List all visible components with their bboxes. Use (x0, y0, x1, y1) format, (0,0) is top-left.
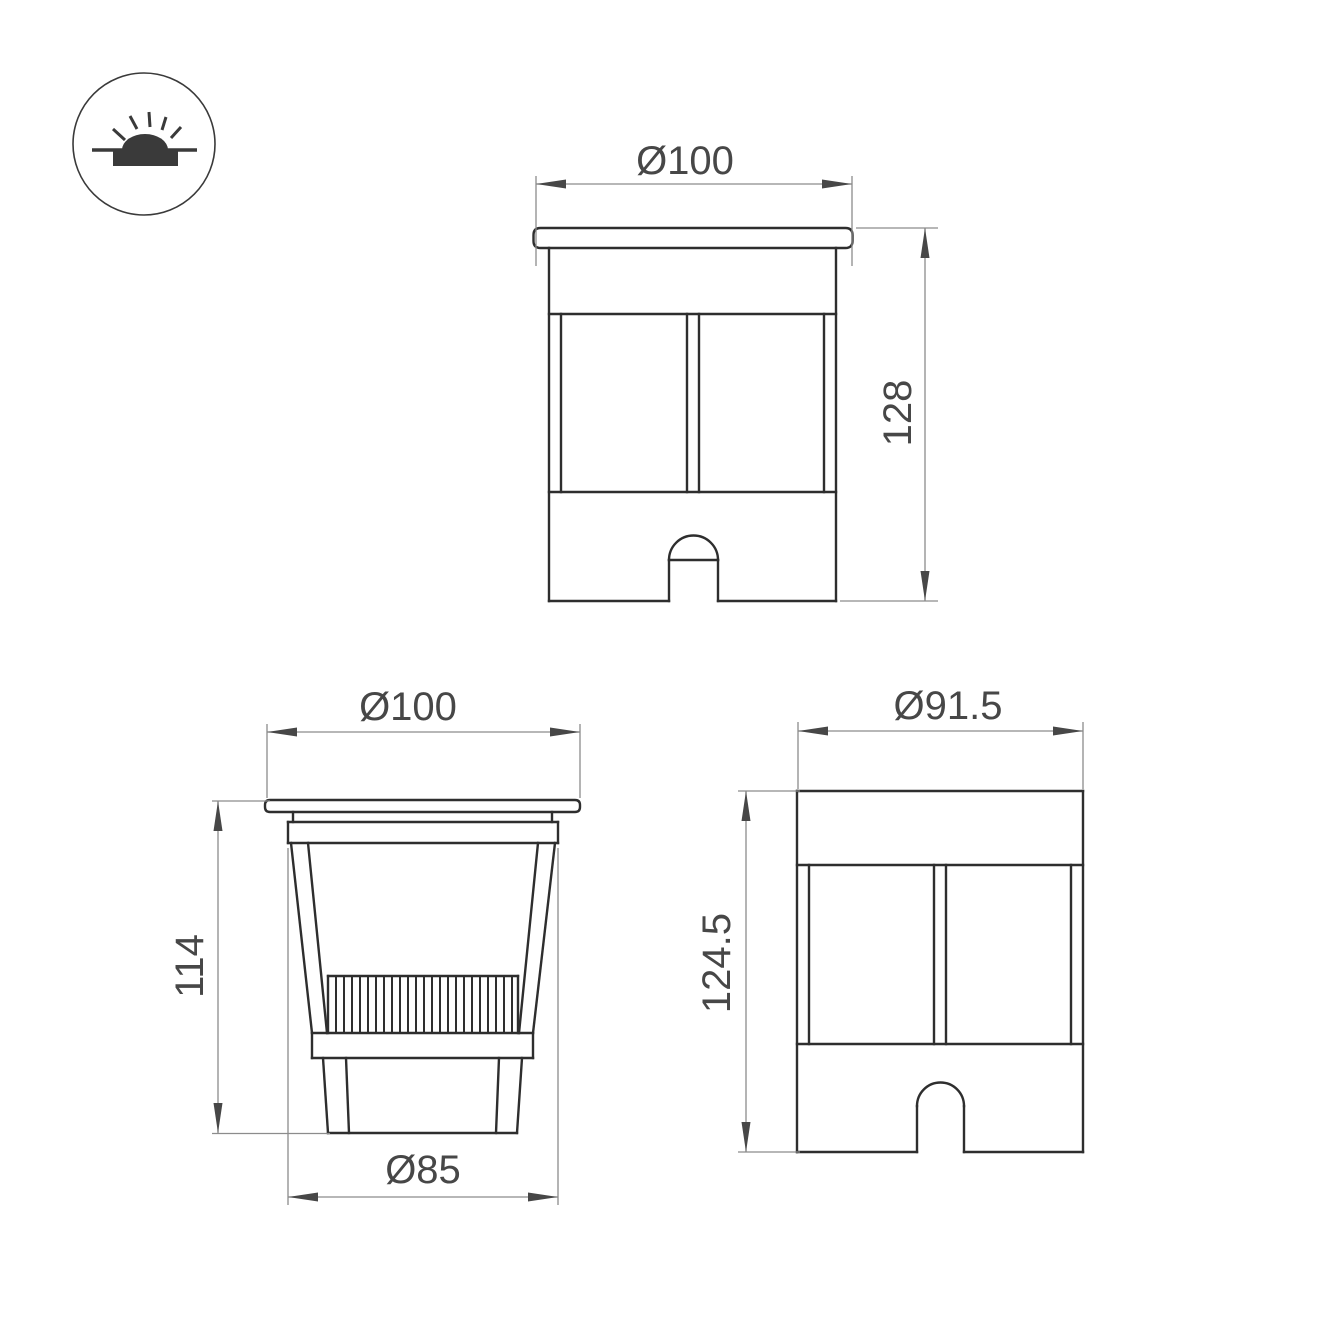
section-width-dimension: Ø100 (267, 685, 580, 798)
front-height-label: 128 (876, 380, 920, 447)
side-height-label: 124.5 (695, 913, 739, 1013)
side-width-dimension: Ø91.5 (798, 684, 1083, 789)
light-dome (122, 134, 168, 150)
side-diameter-label: Ø91.5 (894, 684, 1003, 728)
section-view: Ø100 114 Ø85 (168, 685, 580, 1205)
side-height-dimension: 124.5 (695, 791, 800, 1152)
front-height-dimension: 128 (840, 228, 938, 601)
side-view: Ø91.5 124.5 (695, 684, 1083, 1152)
side-outline (797, 791, 1083, 1152)
luminaire-dimension-drawing: Ø100 128 (0, 0, 1331, 1331)
front-outline (534, 228, 853, 601)
section-bottom-diameter-label: Ø85 (385, 1148, 461, 1192)
installation-icon (73, 73, 215, 215)
technical-drawing-page: Ø100 128 (0, 0, 1331, 1331)
section-diameter-label: Ø100 (359, 685, 457, 729)
front-diameter-label: Ø100 (636, 139, 734, 183)
section-outline (265, 800, 580, 1133)
section-height-label: 114 (168, 934, 212, 998)
heatsink-fins (336, 977, 512, 1032)
recessed-housing (113, 150, 178, 166)
front-view: Ø100 128 (534, 139, 939, 601)
